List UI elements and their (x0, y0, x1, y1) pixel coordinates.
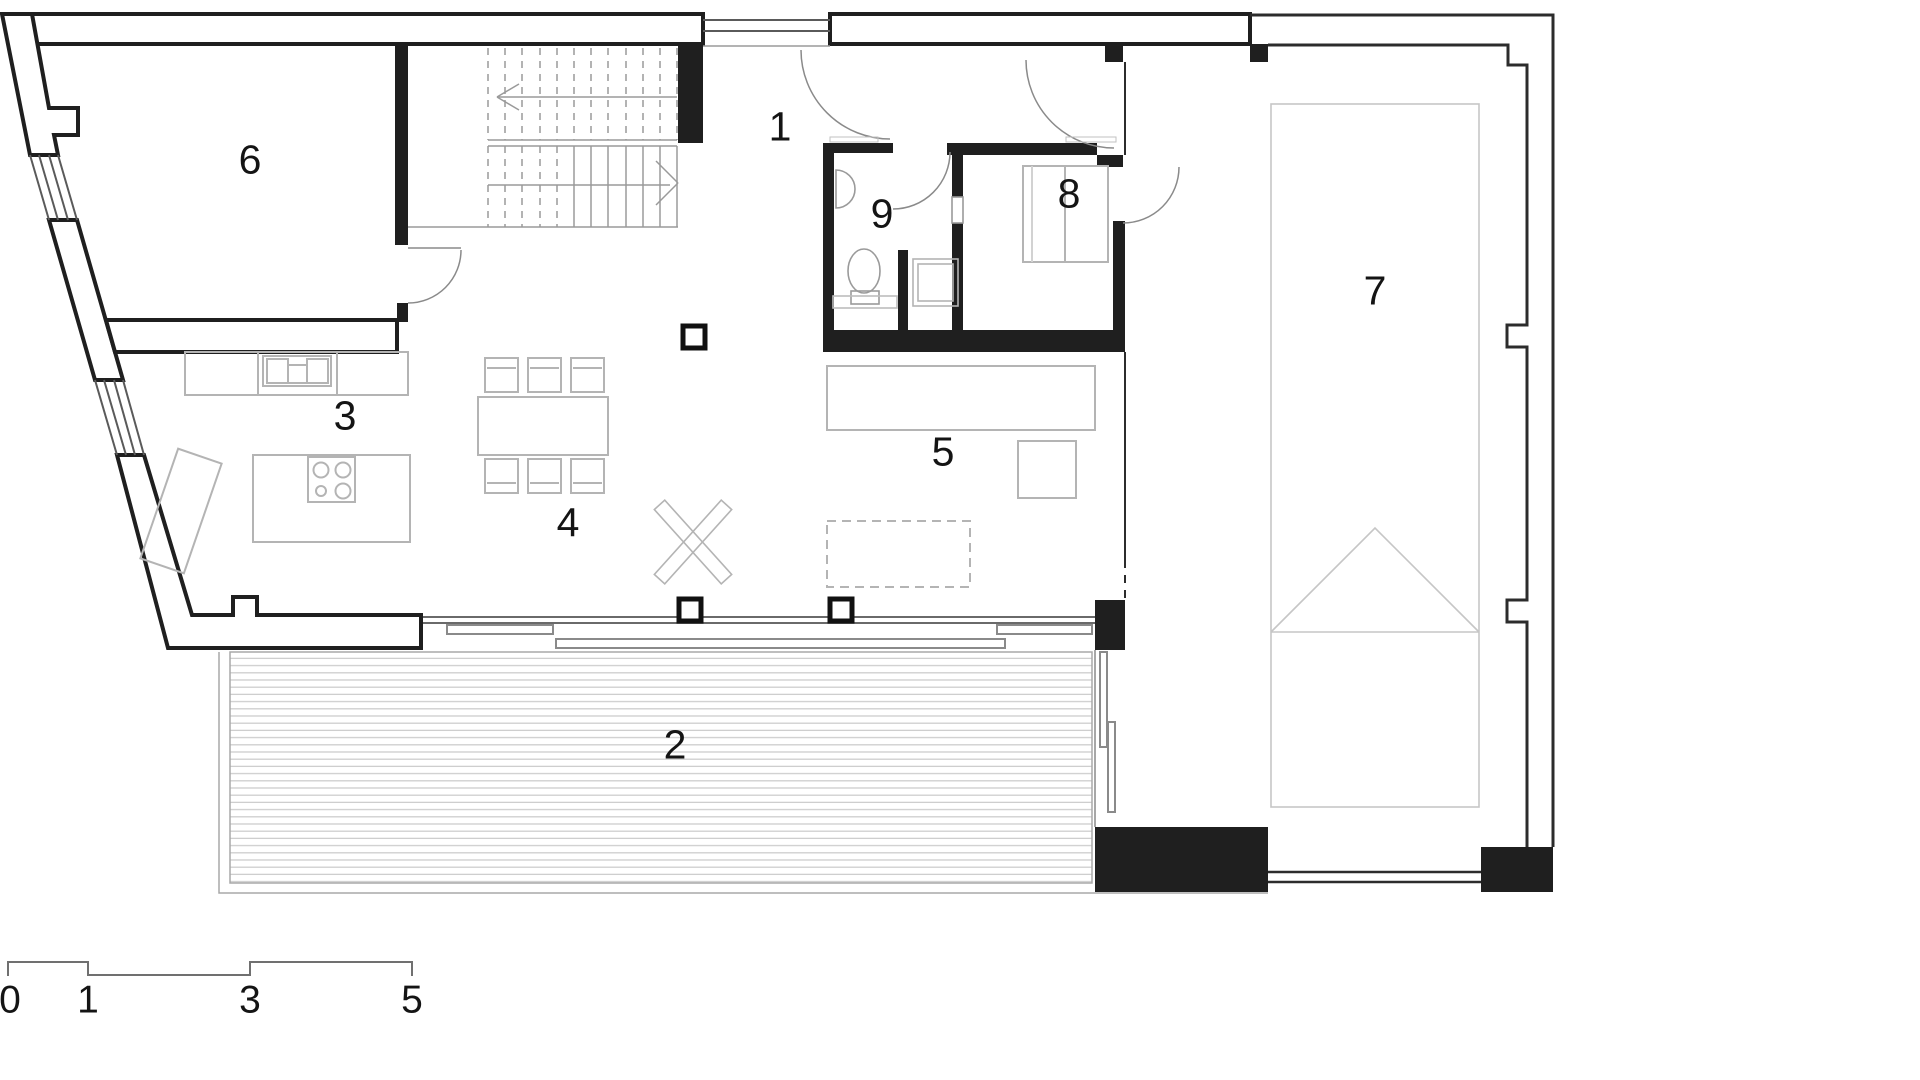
sink-icon (263, 356, 331, 386)
kitchen-island-icon (253, 455, 410, 542)
stairs-icon (408, 48, 678, 227)
scale-label-1: 1 (77, 981, 99, 1020)
windows (30, 20, 830, 455)
side-table-icon (1018, 441, 1076, 498)
room-label-5: 5 (932, 432, 955, 473)
room-label-9: 9 (871, 194, 894, 235)
dining-table-icon (478, 397, 608, 455)
scale-label-3: 3 (239, 981, 261, 1020)
room-label-2: 2 (664, 725, 687, 766)
room-label-7: 7 (1364, 271, 1387, 312)
column-icon (830, 599, 852, 621)
shower-icon (913, 259, 958, 306)
kitchen (140, 352, 410, 573)
dining-set (478, 358, 608, 493)
coffee-table-icon (827, 521, 970, 587)
kitchen-counter-icon (185, 352, 408, 395)
room-label-1: 1 (769, 107, 792, 148)
scale-label-0: 0 (0, 981, 21, 1020)
sofa-icon (827, 366, 1095, 430)
x-marker-icon (654, 500, 731, 584)
room-label-4: 4 (557, 503, 580, 544)
scale-label-5: 5 (401, 981, 423, 1020)
column-icon (683, 326, 705, 348)
floor-plan: 1 2 3 4 5 6 7 8 9 0 1 3 5 (0, 0, 1920, 1080)
car-space-icon (1271, 104, 1479, 807)
chair-icon (485, 358, 604, 493)
floor-plan-drawing (0, 0, 1920, 1080)
living-furniture (827, 366, 1095, 587)
column-icon (679, 599, 701, 621)
room-label-3: 3 (334, 396, 357, 437)
garage (1125, 15, 1553, 882)
room-label-6: 6 (239, 140, 262, 181)
cooktop-icon (308, 457, 355, 502)
scale-bar (8, 962, 412, 976)
sink-icon (836, 170, 855, 208)
room-label-8: 8 (1058, 174, 1081, 215)
